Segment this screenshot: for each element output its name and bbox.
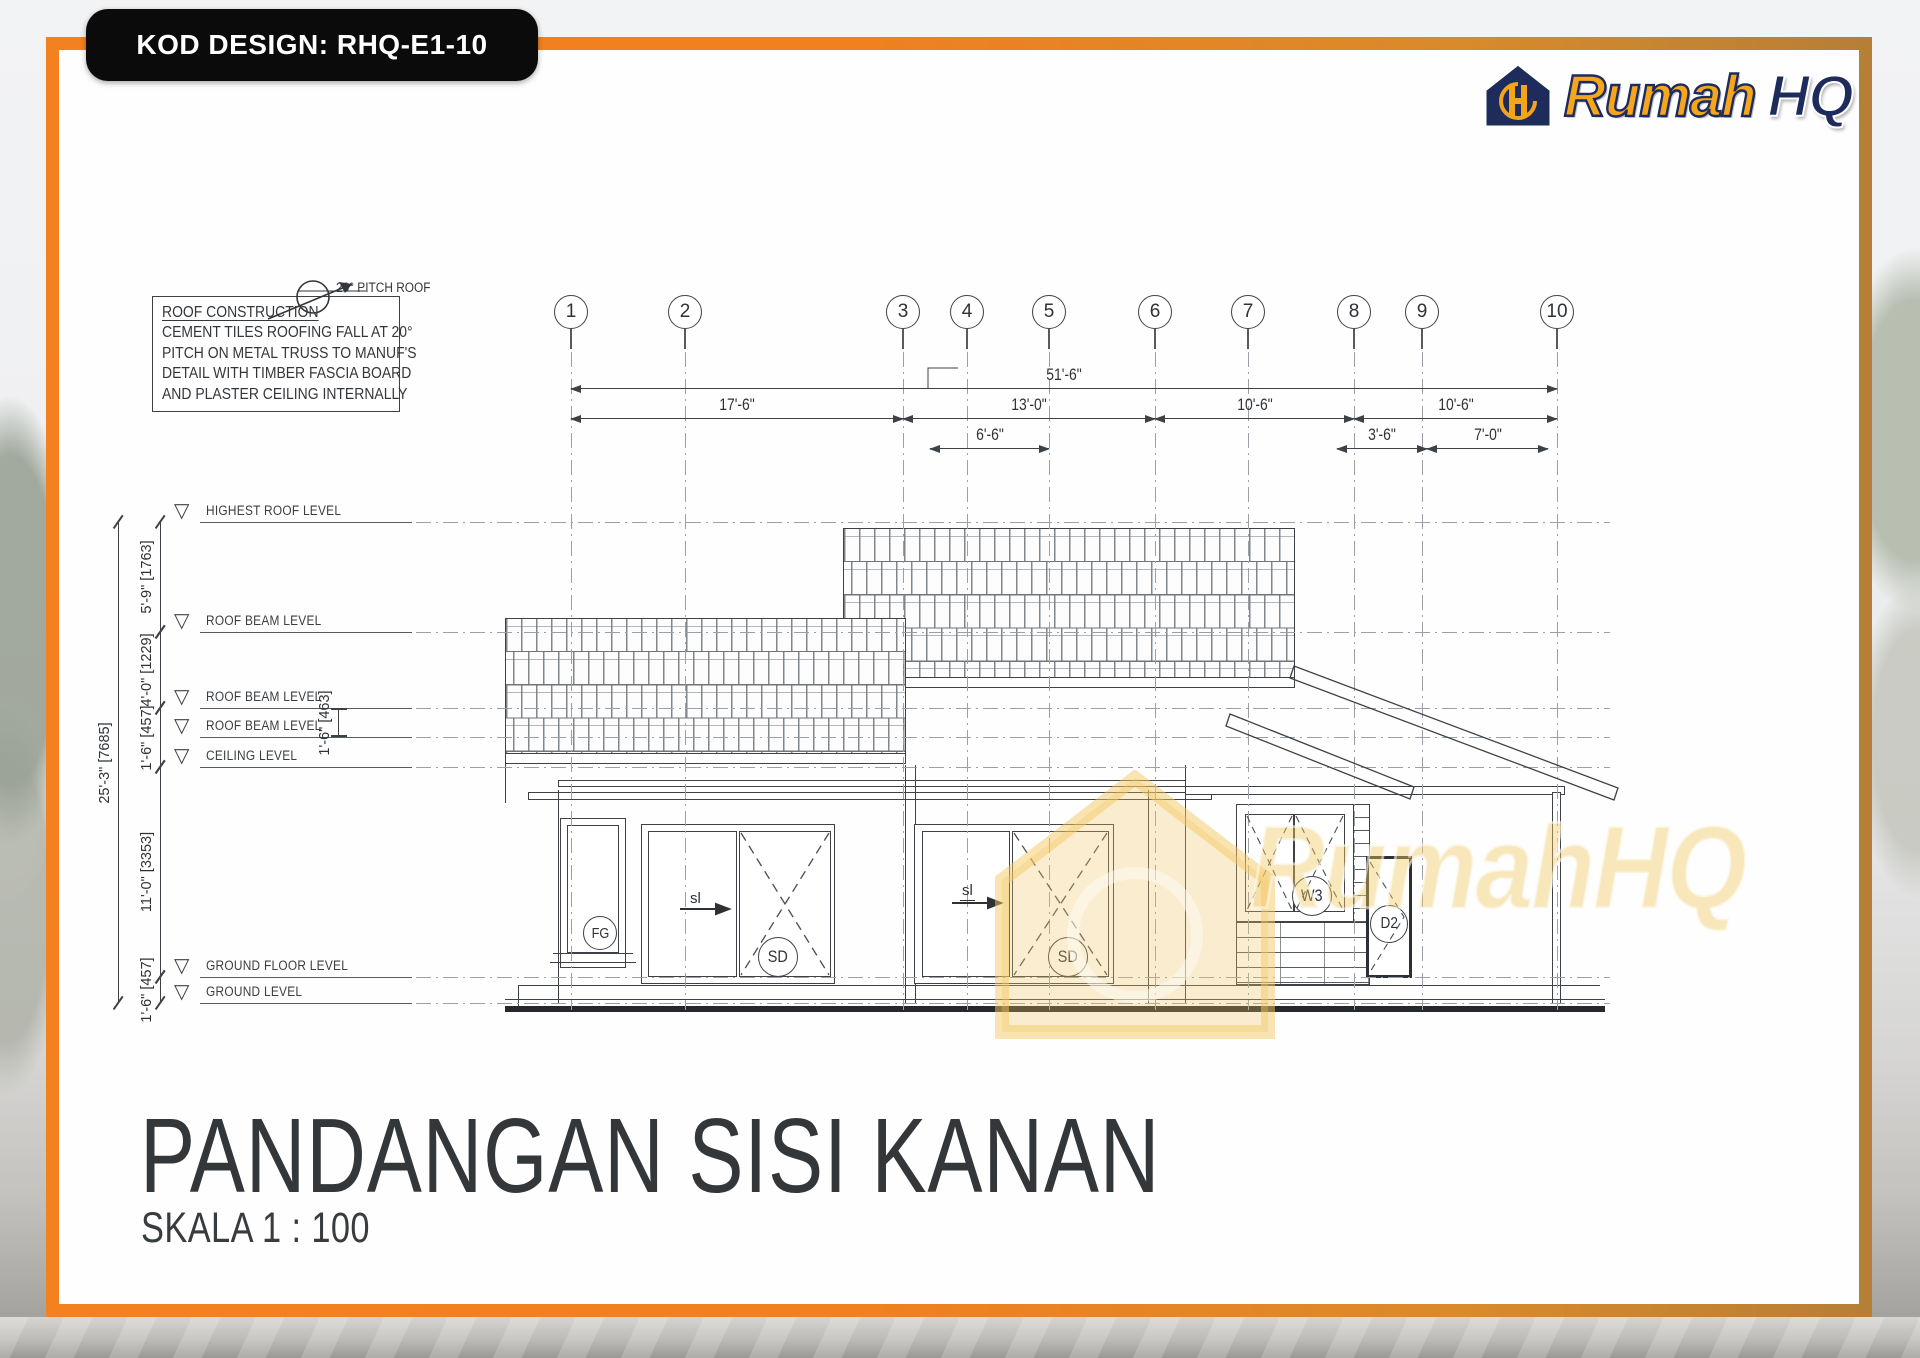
grid-line [1557,325,1558,1010]
dimension-horizontal: 10'-6" [1155,418,1354,419]
note-title: ROOF CONSTRUCTION [162,303,367,323]
dimension-label: 25'-3" [7685] [97,722,113,803]
level-marker-icon: ▽ [174,716,189,736]
dimension-vertical: 1'-6" [463] [338,708,339,737]
roof-tiles-upper [843,528,1295,680]
plinth-line-1 [518,985,1600,986]
level-line-solid [200,632,412,633]
level-line-solid [200,977,412,978]
grid-line-stub [684,329,685,349]
wall-mid-3 [1148,790,1149,1003]
level-label: HIGHEST ROOF LEVEL [206,503,360,518]
dimension-label: 11'-0" [3353] [139,832,155,912]
eave-strip-right [1185,786,1565,795]
dimension-label: 7'-0" [1474,425,1502,445]
level-marker-icon: ▽ [174,956,189,976]
grid-line-stub [1353,329,1354,349]
plinth-line-2 [505,999,1605,1000]
level-marker-icon: ▽ [174,746,189,766]
note-line: AND PLASTER CEILING INTERNALLY [162,385,367,405]
roof-construction-note: ROOF CONSTRUCTION CEMENT TILES ROOFING F… [152,296,400,412]
grid-line [1422,325,1423,1010]
level-label-text: ROOF BEAM LEVEL [206,718,322,733]
dimension-label: 17'-6" [719,395,755,415]
dimension-label: 1'-6" [463] [317,690,333,755]
dimension-label: 1'-6" [457] [139,705,155,770]
roof-fascia-upper [843,677,1295,688]
dimension-vertical: 4'-0" [1229] [160,632,161,708]
grid-bubble: 9 [1405,295,1439,329]
d2-tag: D2 [1370,905,1408,943]
drawing-scale: SKALA 1 : 100 [141,1204,370,1253]
dimension-horizontal: 3'-6" [1337,448,1427,449]
note-line: PITCH ON METAL TRUSS TO MANUF'S [162,344,367,364]
level-label: GROUND FLOOR LEVEL [206,958,367,973]
level-marker-icon: ▽ [174,982,189,1002]
dimension-label: 1'-6" [457] [139,957,155,1022]
roof-fascia-lower [505,753,906,764]
slide-direction-label-1: sl [688,890,703,909]
beam-strip [528,792,1212,800]
grid-line-stub [1421,329,1422,349]
dimension-horizontal: 10'-6" [1354,418,1557,419]
level-line-solid [200,1003,412,1004]
design-code-label: KOD DESIGN: RHQ-E1-10 [86,9,538,81]
note-line: CEMENT TILES ROOFING FALL AT 20° [162,323,367,343]
drawing-title: PANDANGAN SISI KANAN [140,1096,1160,1217]
brand-word-primary: Rumah [1564,63,1756,130]
grid-line [1354,325,1355,1010]
level-label: CEILING LEVEL [206,748,310,763]
grid-line [571,325,572,1010]
grid-line-stub [966,329,967,349]
grid-line-stub [1154,329,1155,349]
grid-line-stub [570,329,571,349]
dimension-vertical: 11'-0" [3353] [160,767,161,977]
dimension-label: 6'-6" [976,425,1004,445]
level-label-text: ROOF BEAM LEVEL [206,613,322,628]
level-line-solid [200,737,412,738]
grid-bubble: 1 [554,295,588,329]
grid-bubble: 5 [1032,295,1066,329]
dimension-label: 51'-6" [1046,365,1082,385]
dimension-horizontal: 13'-0" [903,418,1155,419]
dimension-label: 4'-0" [1229] [139,633,155,706]
grid-bubble: 8 [1337,295,1371,329]
dimension-label: 5'-9" [1763] [139,540,155,613]
level-label: GROUND LEVEL [206,984,315,999]
dimension-horizontal: 7'-0" [1427,448,1548,449]
brand-logo: Rumah HQ [1482,56,1853,136]
grid-bubble: 6 [1138,295,1172,329]
slide-direction-label-2: sl [960,882,975,901]
grid-line-stub [1048,329,1049,349]
dimension-label: 10'-6" [1237,395,1273,415]
eave-strip [558,780,1186,787]
grid-bubble: 10 [1540,295,1574,329]
grid-line [1049,325,1050,1010]
dimension-label: 3'-6" [1368,425,1396,445]
level-label: ROOF BEAM LEVEL [206,613,337,628]
dimension-horizontal: 6'-6" [930,448,1049,449]
wall-mid-1 [905,765,906,1003]
level-marker-icon: ▽ [174,611,189,631]
grid-bubble: 4 [950,295,984,329]
level-line-solid [200,767,412,768]
grid-line [1155,325,1156,1010]
dimension-label: 13'-0" [1011,395,1047,415]
w3-tag: W3 [1292,876,1332,916]
brand-word-secondary: HQ [1768,63,1853,130]
grid-line [1248,325,1249,1010]
grid-line-stub [1247,329,1248,349]
level-marker-icon: ▽ [174,687,189,707]
dimension-vertical: 25'-3" [7685] [118,522,119,1003]
roof-tiles-lower [505,618,906,755]
pitch-roof-label: 20° PITCH ROOF [336,280,431,295]
wall-corner [1185,765,1186,1003]
fg-sill-2 [550,962,636,963]
grid-bubble: 3 [886,295,920,329]
note-line: DETAIL WITH TIMBER FASCIA BOARD [162,364,367,384]
dimension-horizontal: 17'-6" [571,418,903,419]
level-line-solid [200,522,412,523]
level-label-text: CEILING LEVEL [206,748,297,763]
dimension-vertical: 1'-6" [457] [160,708,161,767]
dimension-label: 10'-6" [1438,395,1474,415]
fg-tag: FG [583,916,617,950]
sd-tag-1: SD [758,937,798,977]
grid-line [903,325,904,1010]
level-label-text: HIGHEST ROOF LEVEL [206,503,341,518]
grid-bubble: 2 [668,295,702,329]
ground-bar [505,1006,1605,1012]
grid-bubble: 7 [1231,295,1265,329]
grid-line [967,325,968,1010]
level-line-solid [200,708,412,709]
grid-line [685,325,686,1010]
grid-line-stub [1556,329,1557,349]
level-marker-icon: ▽ [174,501,189,521]
sd-tag-2: SD [1048,937,1088,977]
level-label-text: GROUND LEVEL [206,984,302,999]
dimension-vertical: 5'-9" [1763] [160,522,161,632]
fg-sill-1 [553,953,633,954]
level-label-text: ROOF BEAM LEVEL [206,689,322,704]
grid-line-stub [902,329,903,349]
level-label-text: GROUND FLOOR LEVEL [206,958,348,973]
dimension-horizontal: 51'-6" [571,388,1557,389]
logo-house-icon [1482,61,1554,131]
